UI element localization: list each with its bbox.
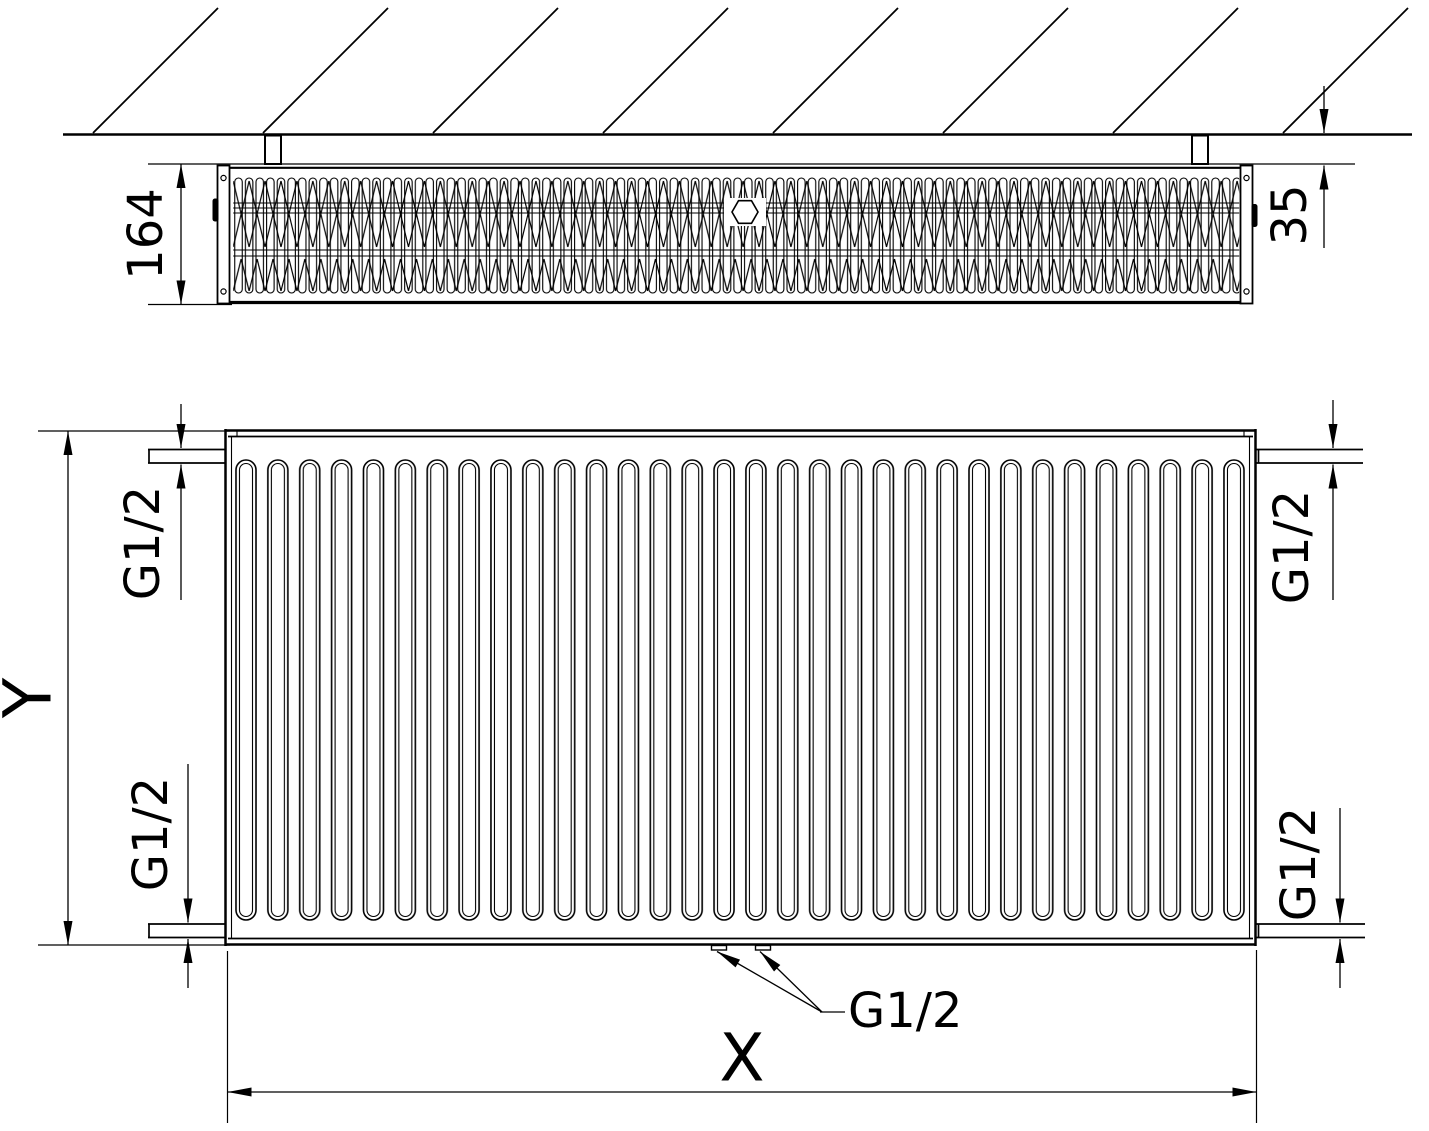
top-view: 164 35 bbox=[63, 8, 1412, 305]
end-plate-right bbox=[1241, 166, 1253, 304]
stub-top-right bbox=[1256, 450, 1363, 464]
dimension-connection-bottom-right: G1/2 bbox=[1271, 807, 1340, 988]
convector-fin-loops bbox=[233, 176, 1239, 296]
connection-bottom-right-label: G1/2 bbox=[1271, 807, 1327, 921]
mounting-bracket-right bbox=[1192, 136, 1208, 165]
wall-offset-dimension-label: 35 bbox=[1262, 184, 1318, 245]
front-view: Y X G1/2 G1/2 G1/2 G1/2 bbox=[0, 400, 1365, 1123]
side-tab-right bbox=[1252, 204, 1258, 227]
stub-bottom-right bbox=[1256, 924, 1365, 938]
radiator-section bbox=[213, 166, 1258, 304]
width-dimension-label: X bbox=[719, 1020, 764, 1097]
end-plate-left bbox=[218, 166, 230, 304]
wall-hatching bbox=[93, 8, 1408, 133]
height-dimension-label: Y bbox=[0, 677, 67, 719]
side-tab-left bbox=[213, 199, 219, 222]
dimension-connection-bottom-left: G1/2 bbox=[123, 764, 188, 988]
connection-bottom-center-label: G1/2 bbox=[848, 983, 962, 1039]
dimension-connection-top-right: G1/2 bbox=[1264, 400, 1333, 604]
connection-top-right-label: G1/2 bbox=[1264, 490, 1320, 604]
center-plug-detail bbox=[724, 198, 766, 226]
stub-bottom-left bbox=[148, 924, 225, 938]
depth-dimension-label: 164 bbox=[118, 188, 174, 280]
radiator-technical-drawing: 164 35 bbox=[0, 0, 1429, 1131]
connection-bottom-left-label: G1/2 bbox=[123, 777, 179, 891]
dimension-wall-offset-35: 35 bbox=[1262, 86, 1324, 248]
connection-top-left-label: G1/2 bbox=[115, 486, 171, 600]
stub-top-left bbox=[148, 450, 225, 464]
radiator-panel bbox=[225, 429, 1256, 946]
stub-bottom-center-right bbox=[756, 946, 771, 951]
dimension-depth-164: 164 bbox=[118, 164, 232, 305]
panel-grooves bbox=[232, 455, 1248, 925]
dimension-connection-top-left: G1/2 bbox=[115, 404, 181, 600]
dimension-width-x: X bbox=[228, 950, 1257, 1123]
drawing-canvas: 164 35 bbox=[0, 0, 1429, 1131]
stub-bottom-center-left bbox=[712, 946, 727, 951]
mounting-bracket-left bbox=[265, 136, 281, 165]
